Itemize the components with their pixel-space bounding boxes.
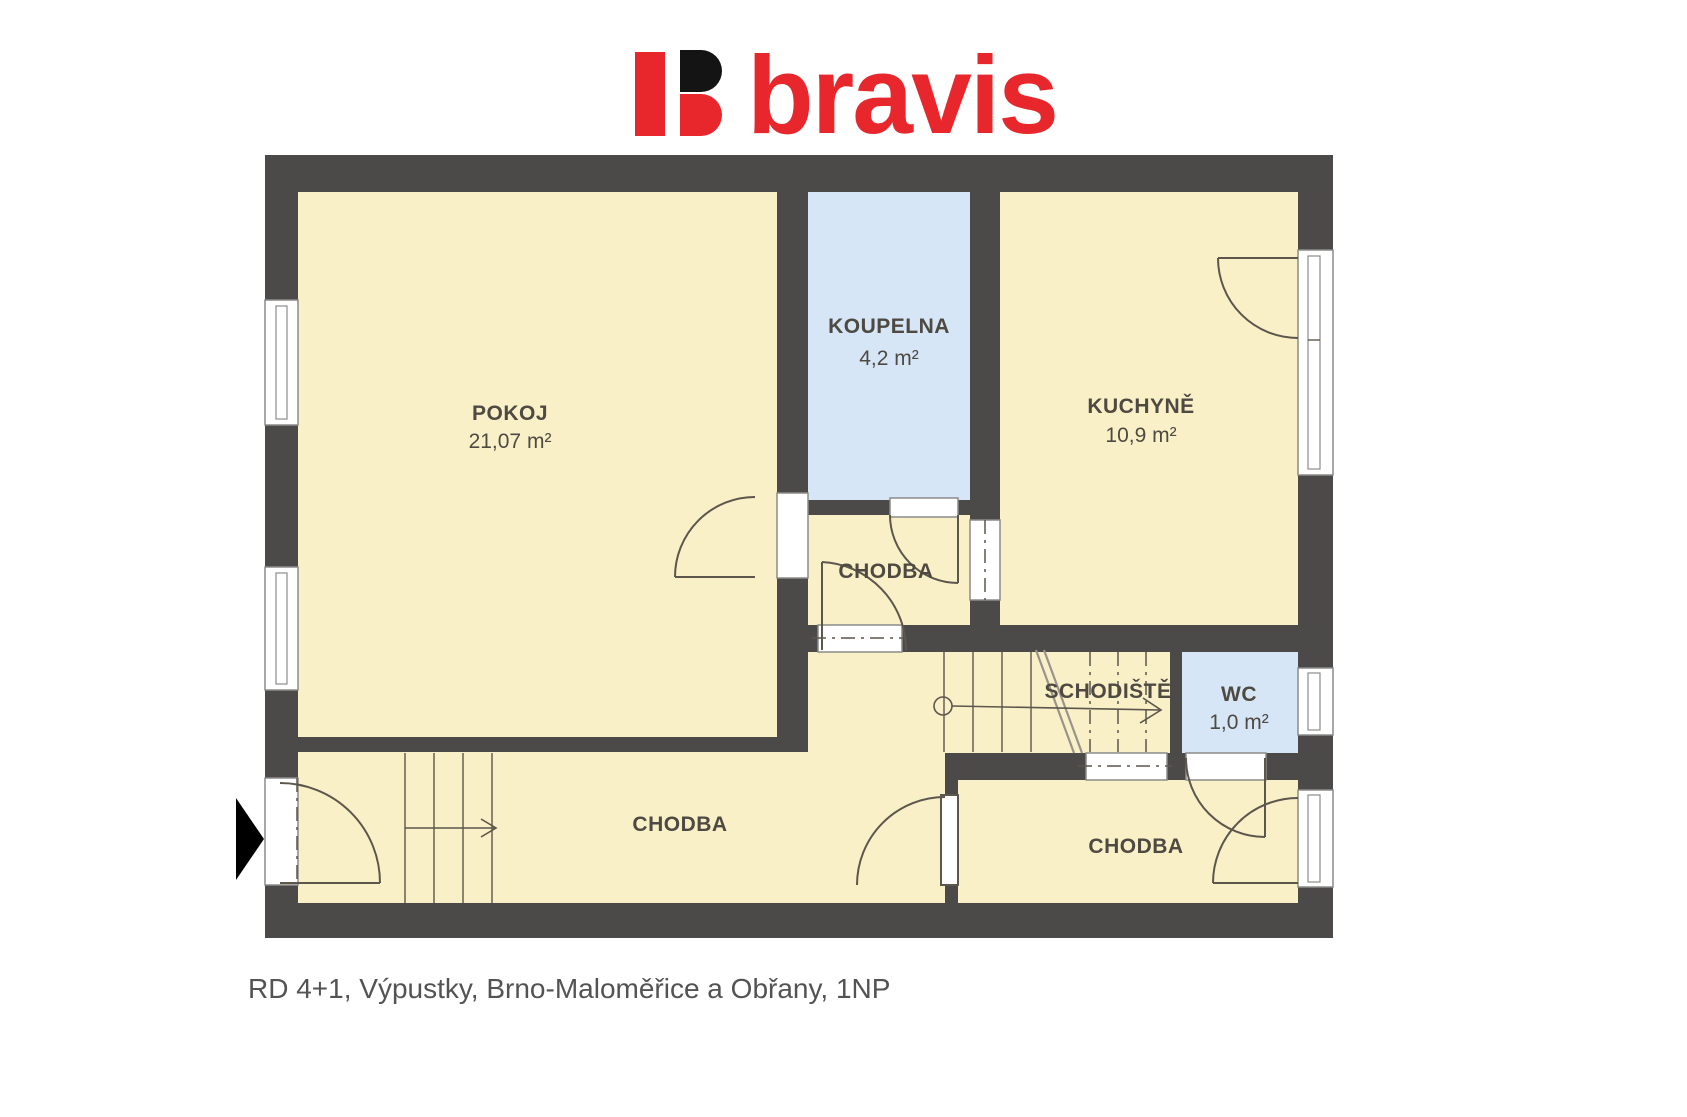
french-door-right	[1298, 790, 1333, 887]
room-area-wc: 1,0 m²	[1209, 711, 1269, 734]
room-label-wc: WC	[1221, 683, 1257, 706]
bravis-logo-b-bottom	[680, 94, 722, 136]
window-left-upper	[265, 300, 298, 425]
door-opening-entrance	[265, 778, 298, 885]
bravis-logo: bravis	[635, 34, 1057, 157]
bravis-logo-text: bravis	[747, 34, 1057, 157]
room-label-kuchyne: KUCHYNĚ	[1087, 394, 1194, 418]
room-area-kuchyne: 10,9 m²	[1105, 424, 1176, 447]
room-label-koupelna: KOUPELNA	[828, 315, 950, 338]
window-left-lower	[265, 567, 298, 690]
caption: RD 4+1, Výpustky, Brno-Maloměřice a Obřa…	[248, 973, 890, 1004]
bravis-logo-b-top	[680, 50, 722, 92]
entrance-arrow-icon	[236, 798, 264, 880]
room-area-pokoj: 21,07 m²	[469, 430, 552, 453]
door-opening-wc	[1186, 753, 1266, 780]
room-chodba-dolni-floor	[298, 752, 945, 903]
room-label-schodiste: SCHODIŠTĚ	[1044, 679, 1171, 703]
room-koupelna-floor	[808, 192, 970, 500]
bravis-logo-bar	[635, 52, 665, 136]
floor-plan: POKOJ 21,07 m² KOUPELNA 4,2 m² KUCHYNĚ 1…	[236, 155, 1333, 938]
window-right-kitchen	[1298, 250, 1333, 475]
room-area-koupelna: 4,2 m²	[859, 347, 919, 370]
room-pokoj-floor	[298, 192, 777, 737]
window-right-wc	[1298, 668, 1333, 735]
door-opening-pokoj	[777, 493, 808, 578]
room-label-chodba-stred: CHODBA	[838, 560, 933, 583]
door-opening-chodba-stred	[818, 625, 902, 652]
room-label-chodba-dolni: CHODBA	[632, 813, 727, 836]
room-label-chodba-prava: CHODBA	[1088, 835, 1183, 858]
door-opening-koupelna	[890, 498, 958, 517]
room-label-pokoj: POKOJ	[472, 402, 548, 425]
page-canvas: bravis	[0, 0, 1687, 1117]
